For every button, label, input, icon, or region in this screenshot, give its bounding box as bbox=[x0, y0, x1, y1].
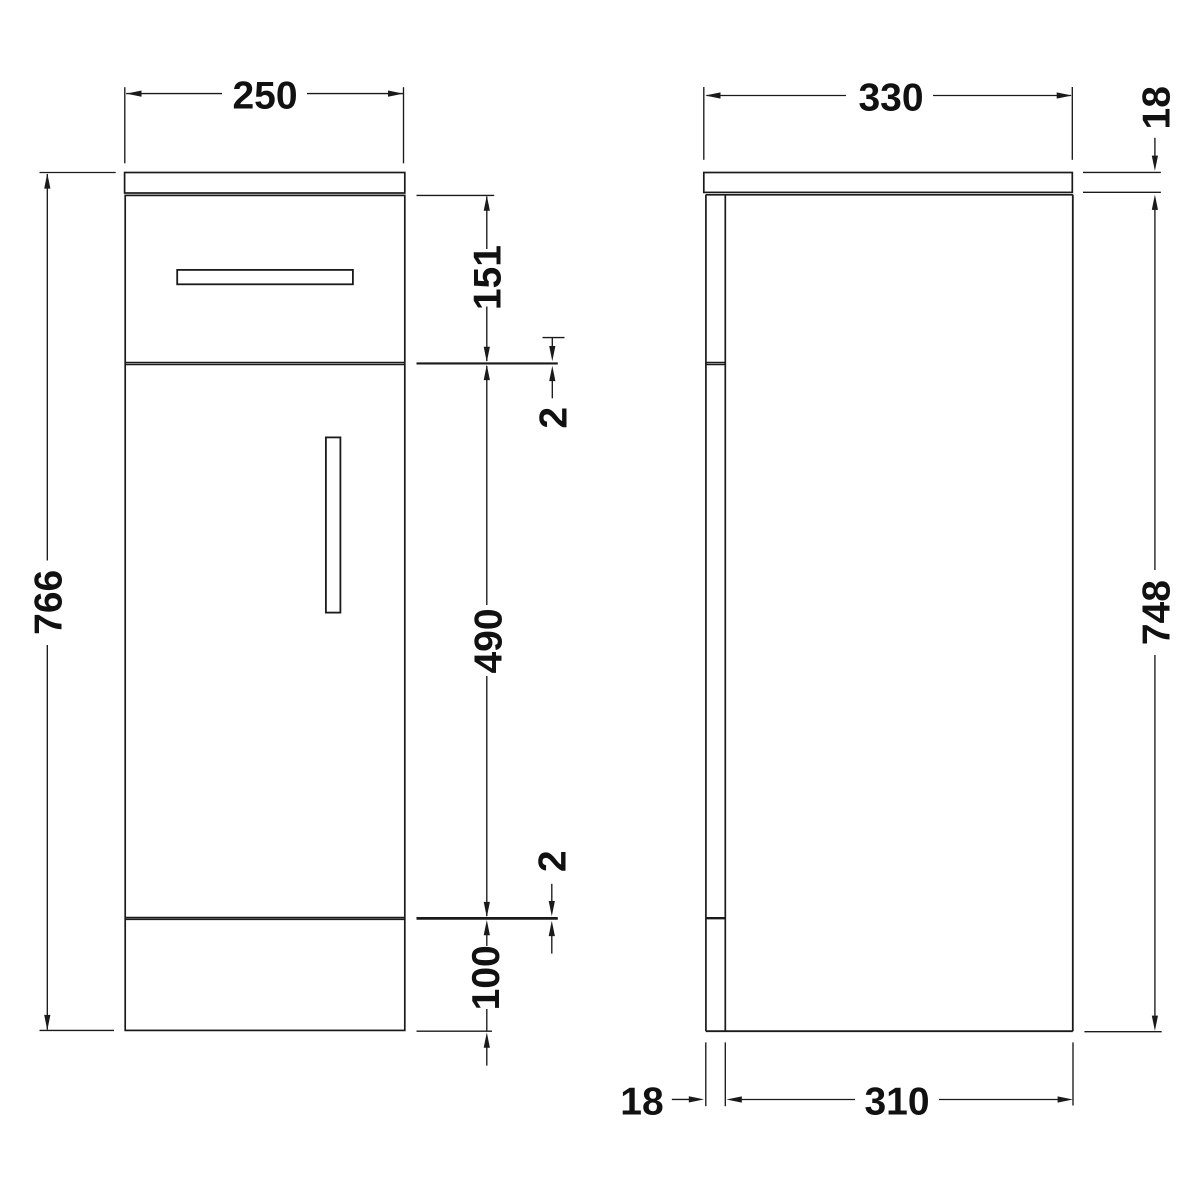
svg-text:490: 490 bbox=[467, 608, 510, 673]
svg-text:100: 100 bbox=[465, 945, 508, 1010]
svg-text:310: 310 bbox=[864, 1081, 929, 1124]
svg-text:151: 151 bbox=[467, 245, 510, 310]
svg-text:748: 748 bbox=[1135, 580, 1178, 645]
svg-text:766: 766 bbox=[28, 570, 71, 635]
svg-text:18: 18 bbox=[620, 1080, 663, 1123]
svg-text:18: 18 bbox=[1135, 86, 1178, 129]
svg-text:330: 330 bbox=[858, 76, 923, 119]
svg-text:250: 250 bbox=[232, 74, 297, 117]
svg-text:2: 2 bbox=[532, 850, 575, 872]
svg-text:2: 2 bbox=[532, 407, 575, 429]
